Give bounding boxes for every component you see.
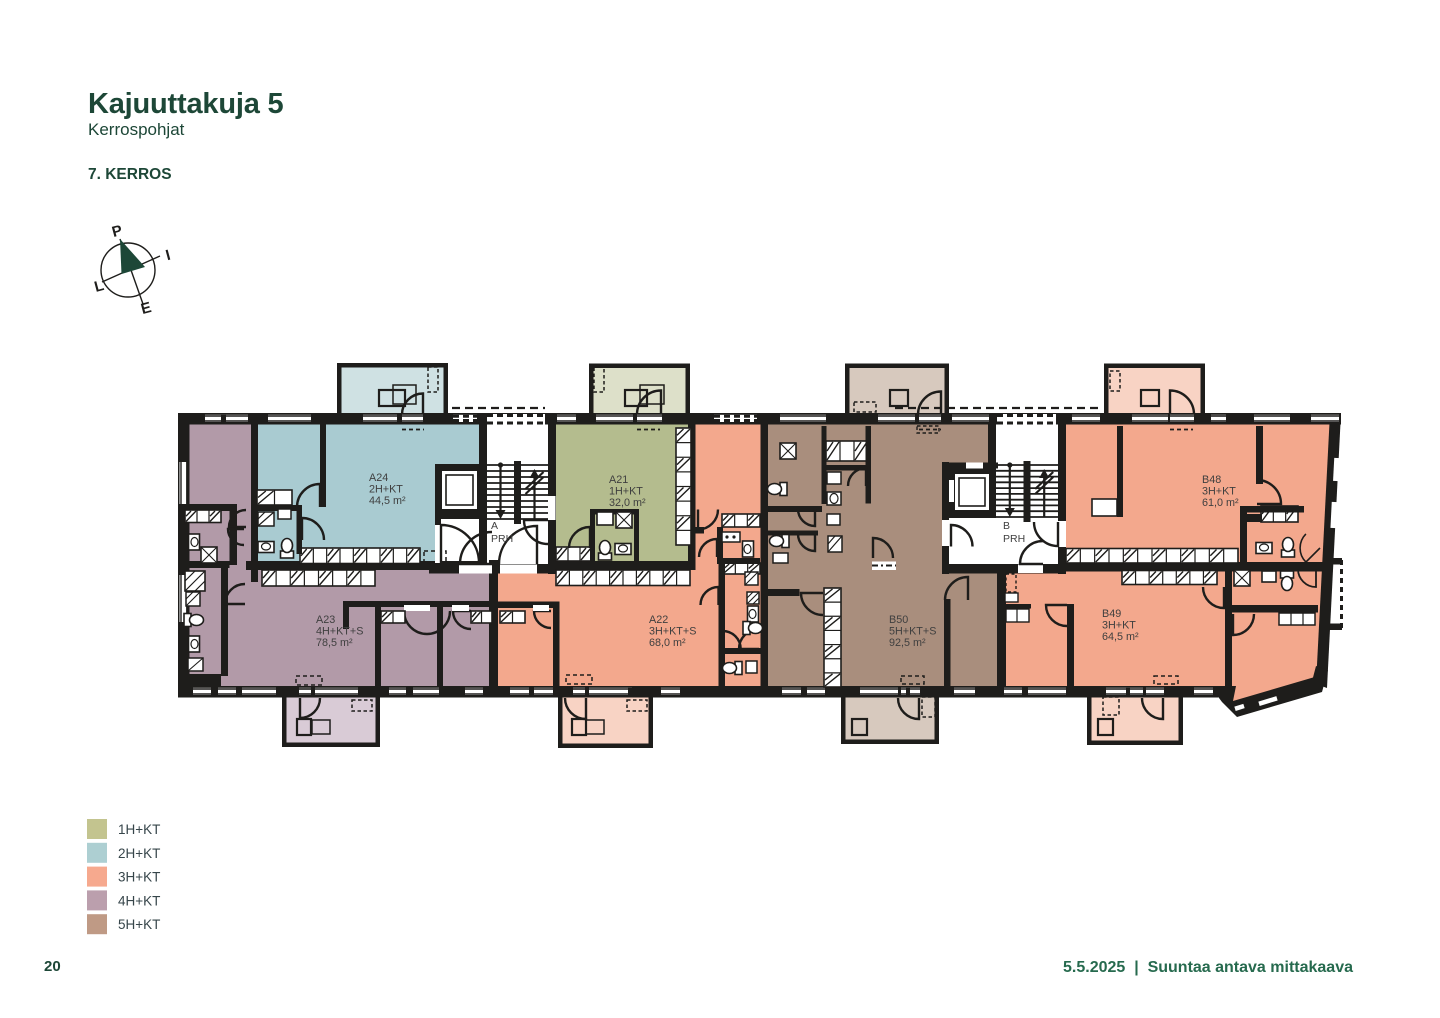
- svg-text:PRH: PRH: [1003, 533, 1025, 545]
- svg-text:B50: B50: [889, 614, 908, 626]
- svg-text:32,0 m²: 32,0 m²: [609, 497, 646, 509]
- svg-text:3H+KT+S: 3H+KT+S: [649, 626, 696, 638]
- svg-text:2H+KT: 2H+KT: [118, 846, 160, 861]
- svg-text:4H+KT: 4H+KT: [118, 893, 160, 908]
- svg-text:78,5 m²: 78,5 m²: [316, 637, 353, 649]
- svg-text:E: E: [139, 299, 153, 318]
- svg-text:68,0 m²: 68,0 m²: [649, 637, 686, 649]
- svg-text:3H+KT: 3H+KT: [1102, 620, 1136, 632]
- svg-text:64,5 m²: 64,5 m²: [1102, 631, 1139, 643]
- svg-text:B48: B48: [1202, 474, 1221, 486]
- svg-text:A23: A23: [316, 614, 335, 626]
- svg-text:P: P: [110, 222, 124, 241]
- svg-text:2H+KT: 2H+KT: [369, 484, 403, 496]
- svg-text:A: A: [491, 520, 498, 532]
- svg-text:A22: A22: [649, 614, 668, 626]
- svg-text:I: I: [164, 247, 172, 265]
- svg-text:1H+KT: 1H+KT: [609, 486, 643, 498]
- svg-text:PRH: PRH: [491, 533, 513, 545]
- svg-text:44,5 m²: 44,5 m²: [369, 495, 406, 507]
- svg-text:B: B: [1003, 520, 1010, 532]
- svg-text:92,5 m²: 92,5 m²: [889, 637, 926, 649]
- svg-text:5H+KT: 5H+KT: [118, 917, 160, 932]
- svg-text:1H+KT: 1H+KT: [118, 822, 160, 837]
- svg-text:3H+KT: 3H+KT: [1202, 486, 1236, 498]
- svg-text:4H+KT+S: 4H+KT+S: [316, 626, 363, 638]
- svg-text:L: L: [92, 277, 105, 296]
- svg-text:3H+KT: 3H+KT: [118, 870, 160, 885]
- svg-text:5H+KT+S: 5H+KT+S: [889, 626, 936, 638]
- svg-text:A24: A24: [369, 472, 388, 484]
- svg-text:A21: A21: [609, 474, 628, 486]
- svg-text:61,0 m²: 61,0 m²: [1202, 497, 1239, 509]
- svg-text:B49: B49: [1102, 608, 1121, 620]
